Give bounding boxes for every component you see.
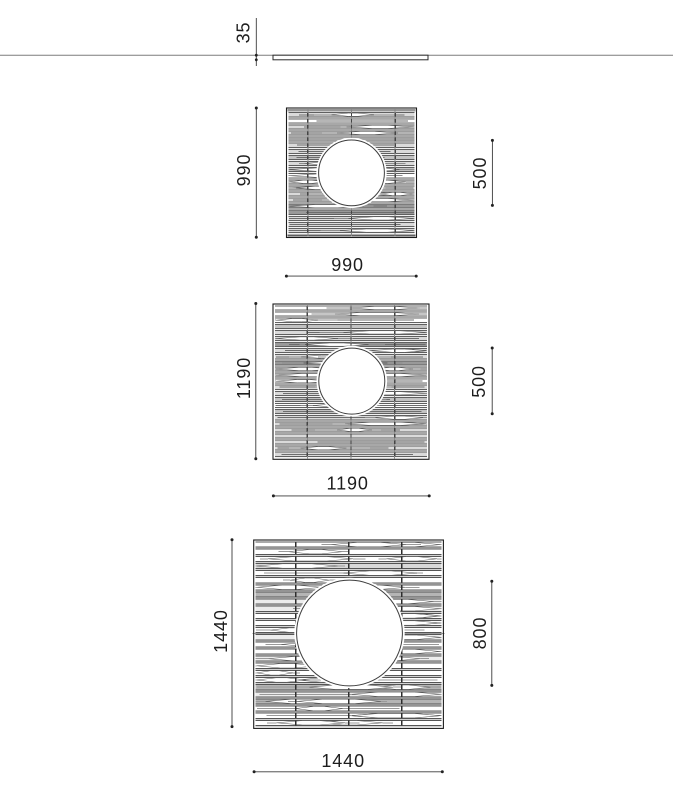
svg-text:1440: 1440: [211, 609, 231, 653]
svg-text:800: 800: [470, 617, 490, 650]
svg-text:1190: 1190: [234, 357, 254, 399]
svg-text:990: 990: [234, 154, 254, 187]
svg-text:1190: 1190: [327, 474, 369, 494]
svg-text:990: 990: [331, 255, 364, 275]
svg-text:1440: 1440: [321, 751, 365, 771]
svg-text:35: 35: [234, 22, 254, 44]
svg-text:500: 500: [470, 157, 490, 190]
svg-text:500: 500: [469, 365, 489, 398]
